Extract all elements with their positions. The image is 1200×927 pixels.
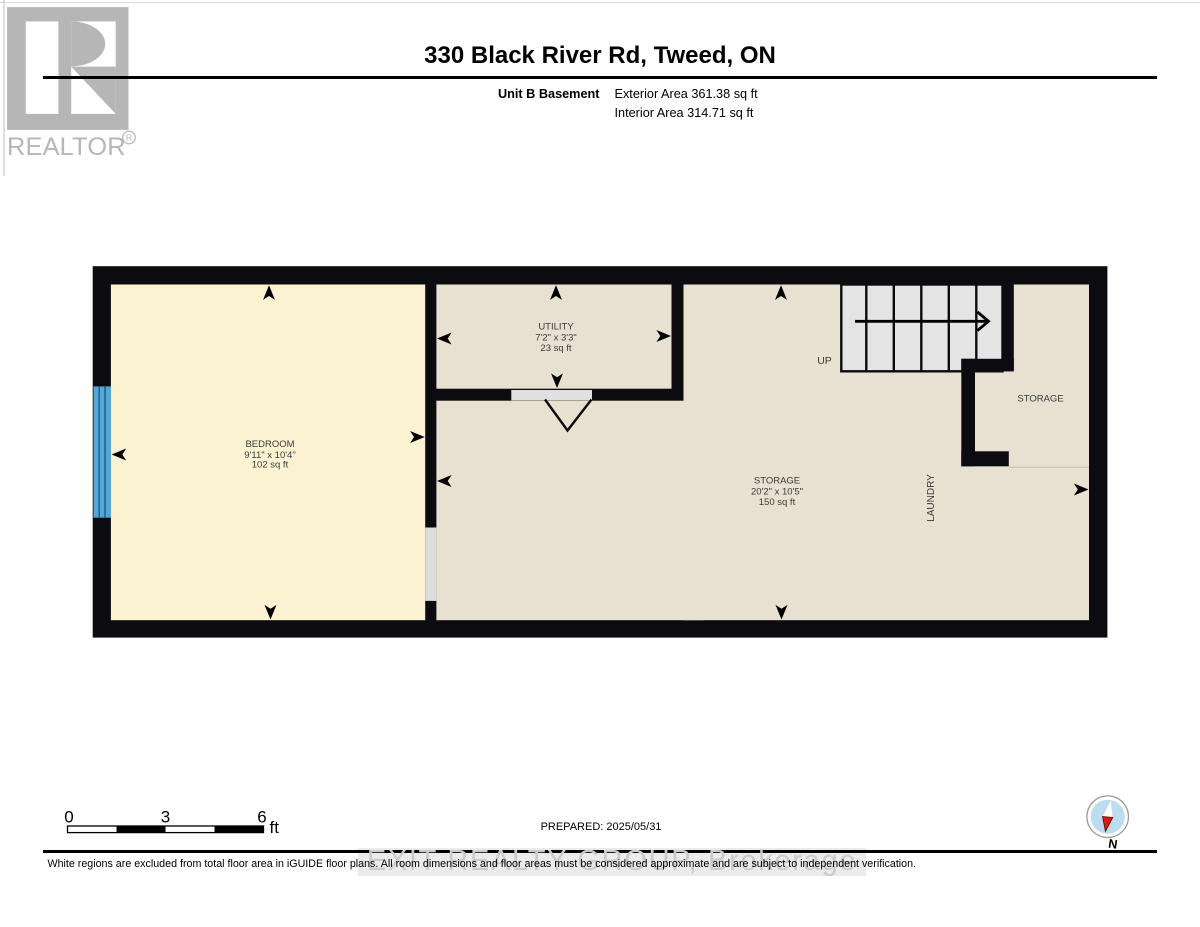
svg-text:3: 3 [161, 808, 170, 827]
svg-text:20'2" x 10'5": 20'2" x 10'5" [751, 487, 803, 498]
svg-text:ft: ft [270, 818, 280, 837]
svg-text:BEDROOM: BEDROOM [245, 439, 294, 450]
svg-text:STORAGE: STORAGE [1017, 394, 1063, 405]
svg-text:6: 6 [257, 808, 266, 827]
svg-text:150 sq ft: 150 sq ft [759, 497, 796, 508]
svg-text:LAUNDRY: LAUNDRY [926, 474, 937, 522]
svg-text:102 sq ft: 102 sq ft [252, 460, 289, 471]
svg-text:UTILITY: UTILITY [538, 321, 574, 332]
svg-text:UP: UP [817, 355, 832, 367]
svg-text:7'2" x 3'3": 7'2" x 3'3" [535, 332, 577, 343]
svg-text:0: 0 [64, 808, 73, 827]
svg-text:STORAGE: STORAGE [754, 476, 800, 487]
svg-text:23 sq ft: 23 sq ft [540, 343, 572, 354]
